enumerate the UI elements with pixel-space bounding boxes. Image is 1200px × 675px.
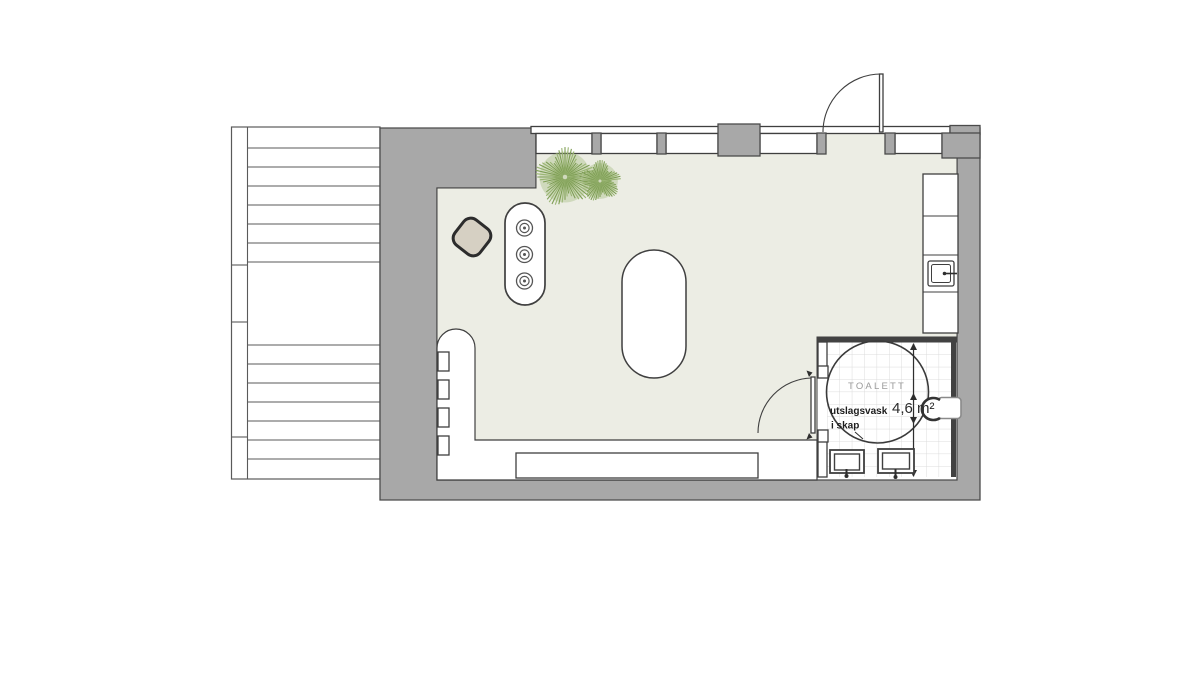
toilet-room-label: TOALETT (848, 381, 906, 392)
toilet-note-line2: i skap (831, 421, 859, 432)
door-jamb-mullion (885, 133, 895, 154)
toilet-room: TOALETT 4,6 m² utslagsvask i skap (817, 337, 961, 479)
toilet-door-post (818, 430, 828, 442)
toilet-note-line1: utslagsvask (830, 406, 888, 417)
toilet-door-leaf (811, 377, 815, 433)
staircase-outline (232, 127, 381, 479)
entry-door-swing-arc (823, 74, 881, 132)
console-burner (517, 220, 533, 236)
bottom-bench (516, 453, 758, 478)
window-mullion (657, 133, 666, 154)
window-section (536, 134, 592, 154)
counter-shelf-box (438, 408, 449, 427)
kitchen-counter (923, 174, 958, 333)
utility-sink (830, 450, 864, 478)
door-jamb-mullion (817, 133, 826, 154)
window-mullion (592, 133, 601, 154)
corner-block (942, 133, 980, 158)
wc-cistern (938, 398, 961, 419)
window-section (895, 134, 942, 154)
window-band (531, 124, 980, 158)
console-burner (517, 273, 533, 289)
sink-tap-head (894, 475, 898, 479)
counter-shelf-box (438, 352, 449, 371)
window-pillar (718, 124, 760, 156)
toilet-door-post (818, 366, 828, 378)
toilet-area-label: 4,6 m² (892, 400, 935, 417)
console-burner (517, 247, 533, 263)
floor-plan-canvas: TOALETT 4,6 m² utslagsvask i skap (0, 0, 1200, 675)
sink-tap-head (845, 474, 849, 478)
toilet-left-wall-upper (818, 342, 827, 369)
window-section (760, 134, 817, 154)
kitchen-counter-outline (923, 174, 958, 333)
floor-plan-drawing: TOALETT 4,6 m² utslagsvask i skap (0, 0, 1200, 675)
counter-shelf-box (438, 380, 449, 399)
staircase (232, 127, 381, 479)
kitchen-faucet-head (943, 272, 947, 276)
window-section (666, 134, 718, 154)
window-section (601, 134, 657, 154)
entry-door-leaf (880, 74, 884, 132)
oval-table (622, 250, 686, 378)
toilet-left-wall-lower (818, 441, 827, 477)
entry-door (823, 74, 883, 132)
counter-shelf-box (438, 436, 449, 455)
console-table (505, 203, 545, 305)
